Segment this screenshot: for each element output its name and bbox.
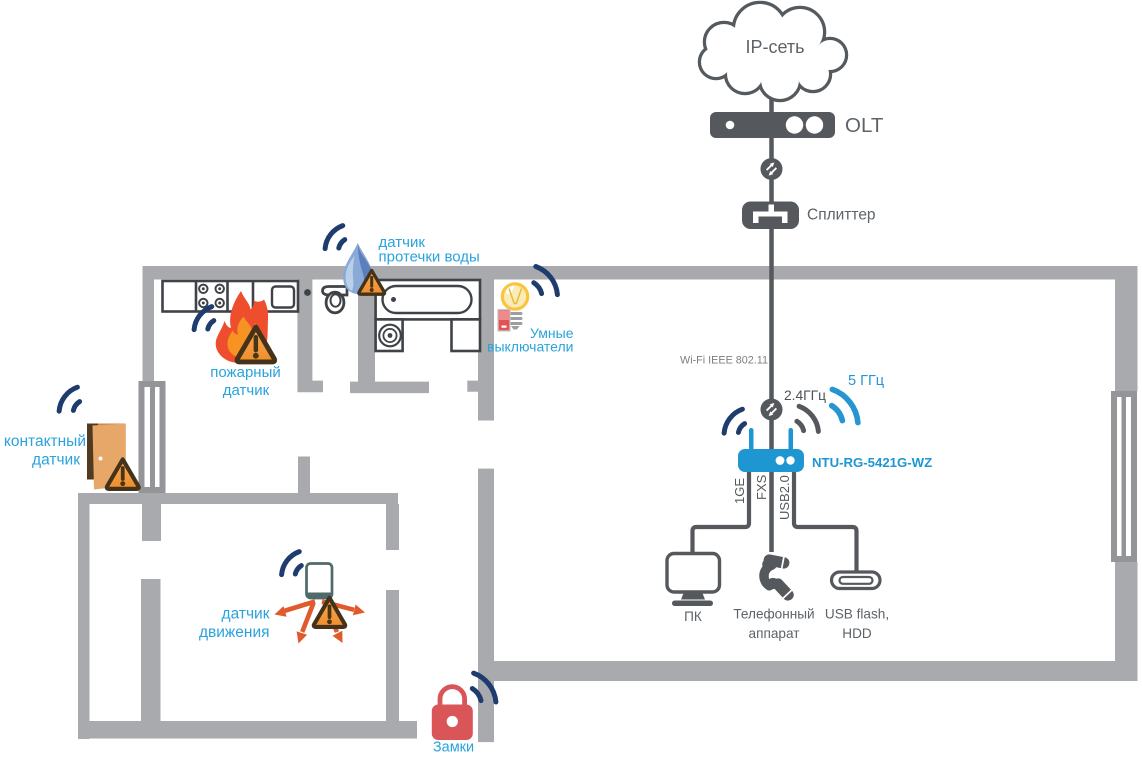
- svg-text:контактный: контактный: [4, 433, 86, 450]
- svg-text:пожарный: пожарный: [210, 364, 280, 381]
- svg-text:IP-сеть: IP-сеть: [745, 37, 804, 57]
- svg-text:Замки: Замки: [433, 740, 474, 756]
- svg-text:USB2.0: USB2.0: [777, 475, 792, 520]
- svg-text:Сплиттер: Сплиттер: [807, 207, 876, 224]
- svg-text:USB flash,: USB flash,: [825, 607, 889, 622]
- svg-text:протечки воды: протечки воды: [379, 249, 480, 266]
- svg-text:выключатели: выключатели: [487, 339, 573, 355]
- svg-text:5 ГГц: 5 ГГц: [848, 373, 884, 389]
- svg-text:OLT: OLT: [845, 114, 884, 137]
- svg-text:2.4ГГц: 2.4ГГц: [784, 388, 826, 403]
- svg-text:1GE: 1GE: [732, 478, 747, 504]
- svg-text:аппарат: аппарат: [749, 626, 800, 641]
- svg-text:FXS: FXS: [754, 474, 769, 500]
- svg-text:датчик: датчик: [222, 606, 270, 623]
- svg-text:Телефонный: Телефонный: [733, 607, 814, 622]
- svg-text:движения: движения: [199, 624, 270, 641]
- svg-text:NTU-RG-5421G-WZ: NTU-RG-5421G-WZ: [812, 455, 932, 470]
- svg-text:датчик: датчик: [223, 382, 270, 399]
- svg-text:ПК: ПК: [684, 609, 702, 624]
- svg-text:датчик: датчик: [32, 452, 80, 469]
- svg-text:HDD: HDD: [842, 626, 872, 641]
- svg-text:Wi-Fi IEEE 802.11: Wi-Fi IEEE 802.11: [680, 355, 768, 367]
